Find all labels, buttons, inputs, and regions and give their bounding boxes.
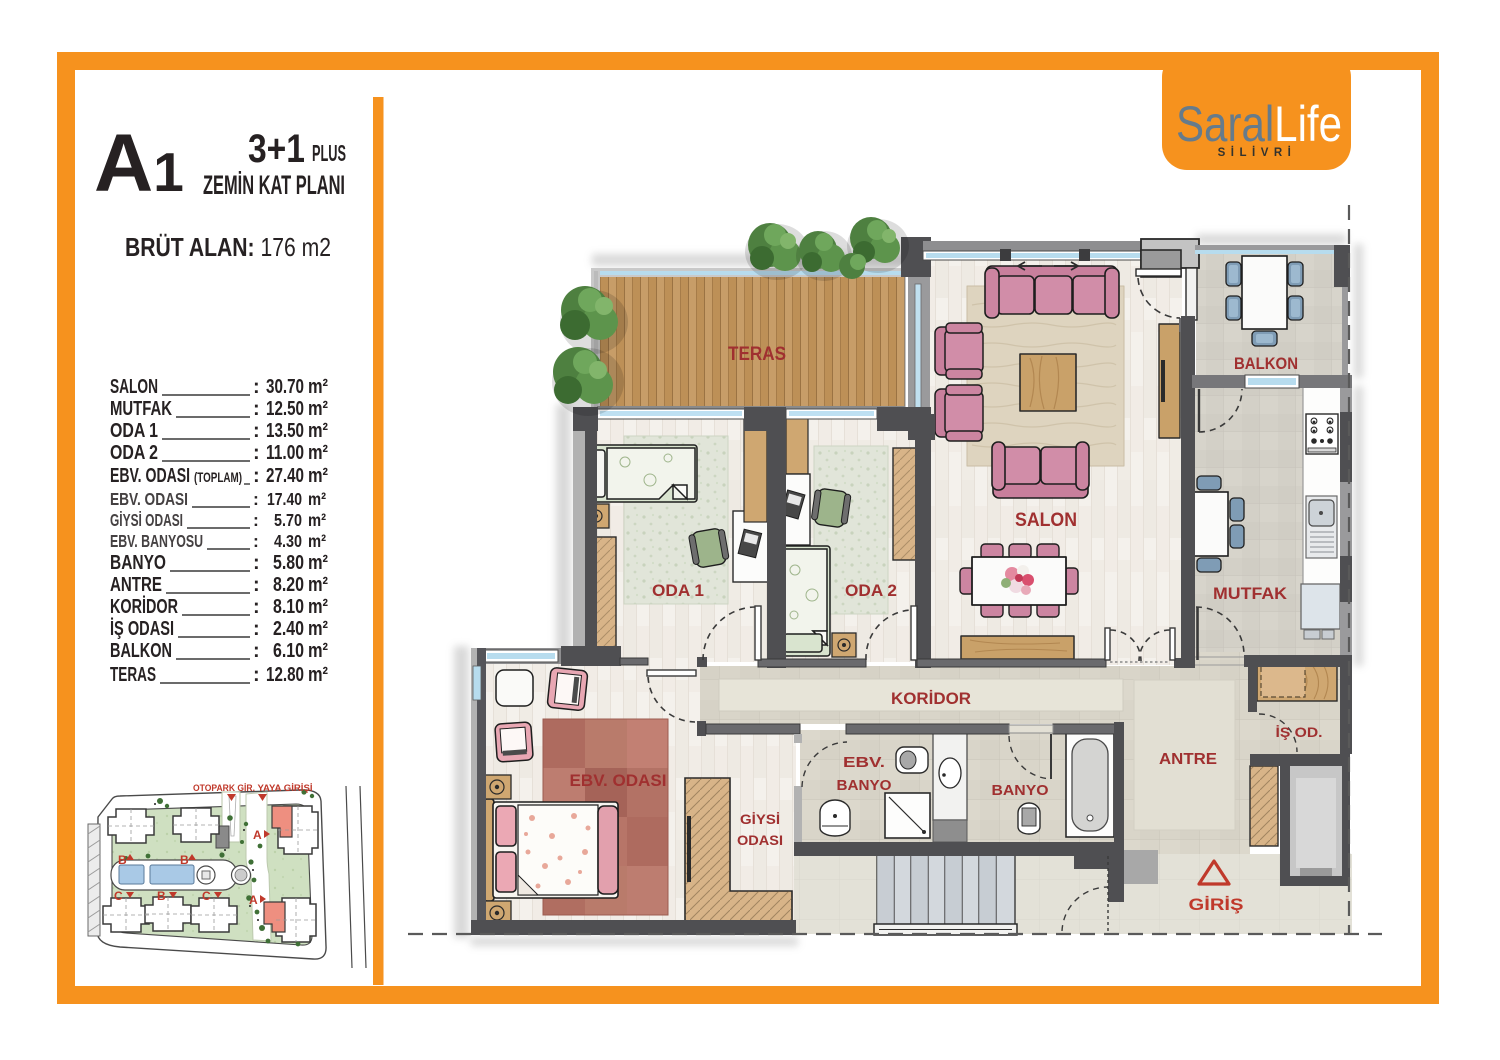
svg-text:B: B (157, 889, 166, 903)
svg-text:GİYSİ: GİYSİ (740, 811, 780, 827)
svg-text:12.50: 12.50 (266, 398, 304, 420)
svg-text:B: B (180, 853, 189, 867)
svg-text:11.00: 11.00 (266, 442, 304, 464)
svg-text:BANYO: BANYO (110, 552, 166, 574)
svg-text:YAYA GİRİŞİ: YAYA GİRİŞİ (258, 783, 313, 794)
svg-text::: : (253, 376, 260, 398)
svg-text:SALON: SALON (1015, 509, 1077, 531)
svg-text:m²: m² (308, 442, 328, 464)
svg-text:4.30: 4.30 (274, 531, 302, 551)
svg-text:A: A (253, 828, 262, 842)
svg-text:m²: m² (308, 596, 328, 618)
svg-text:8.10: 8.10 (273, 596, 304, 618)
svg-text:ODA 1: ODA 1 (652, 582, 704, 600)
svg-text:ODA 2: ODA 2 (845, 582, 897, 600)
svg-text:BANYO: BANYO (992, 782, 1049, 799)
svg-text:5.80: 5.80 (273, 552, 304, 574)
svg-text:2.40: 2.40 (273, 618, 304, 640)
svg-text:B: B (118, 853, 127, 867)
svg-text::: : (253, 596, 260, 618)
svg-text:TERAS: TERAS (728, 344, 786, 365)
svg-text:m²: m² (308, 664, 328, 686)
svg-text::: : (253, 618, 260, 640)
svg-text::: : (253, 489, 259, 509)
svg-text:SİLİVRİ: SİLİVRİ (1218, 146, 1297, 159)
svg-text:EBV. ODASI: EBV. ODASI (110, 489, 188, 509)
svg-text:ODASI: ODASI (737, 832, 783, 848)
svg-text:EBV.: EBV. (843, 755, 885, 771)
svg-text:ANTRE: ANTRE (1159, 751, 1217, 768)
svg-text::: : (253, 552, 260, 574)
svg-text:12.80: 12.80 (266, 664, 304, 686)
svg-text:EBV. BANYOSU: EBV. BANYOSU (110, 531, 203, 551)
svg-text:13.50: 13.50 (266, 420, 304, 442)
svg-text::: : (253, 398, 260, 420)
svg-text:OTOPARK GİR.: OTOPARK GİR. (193, 783, 255, 794)
svg-text:İŞ OD.: İŞ OD. (1276, 724, 1323, 740)
svg-text:6.10: 6.10 (273, 640, 304, 662)
svg-text:17.40: 17.40 (267, 489, 302, 509)
svg-text:İŞ ODASI: İŞ ODASI (110, 617, 174, 640)
svg-text:SALON: SALON (110, 376, 158, 398)
svg-text:m²: m² (308, 552, 328, 574)
svg-text:TERAS: TERAS (110, 664, 156, 686)
svg-text:SaralLife: SaralLife (1176, 96, 1342, 152)
svg-text:m²: m² (308, 398, 328, 420)
svg-text:A: A (249, 893, 258, 907)
svg-text:PLUS: PLUS (312, 140, 346, 166)
svg-text::: : (253, 510, 259, 530)
svg-text:MUTFAK: MUTFAK (1213, 584, 1288, 603)
svg-text::: : (253, 640, 260, 662)
svg-text::: : (253, 531, 259, 551)
svg-text:C: C (114, 889, 123, 903)
svg-text::: : (253, 465, 260, 487)
svg-text:8.20: 8.20 (273, 574, 304, 596)
svg-text:m²: m² (308, 376, 328, 398)
svg-text:30.70: 30.70 (266, 376, 304, 398)
svg-text:GİYSİ ODASI: GİYSİ ODASI (110, 510, 183, 530)
svg-text:KORİDOR: KORİDOR (891, 689, 971, 708)
svg-text::: : (253, 442, 260, 464)
svg-text:m²: m² (308, 510, 326, 530)
svg-text:GİRİŞ: GİRİŞ (1189, 896, 1244, 914)
svg-text:MUTFAK: MUTFAK (110, 398, 172, 420)
svg-text::: : (253, 574, 260, 596)
svg-text:ANTRE: ANTRE (110, 574, 162, 596)
svg-text::: : (253, 664, 260, 686)
svg-text:ZEMİN KAT PLANI: ZEMİN KAT PLANI (203, 170, 345, 200)
svg-text:ODA 2: ODA 2 (110, 442, 158, 464)
svg-text::: : (253, 420, 260, 442)
svg-text:m²: m² (308, 618, 328, 640)
svg-text:5.70: 5.70 (274, 510, 302, 530)
svg-text:m²: m² (308, 489, 326, 509)
svg-text:m²: m² (308, 465, 328, 487)
svg-text:BALKON: BALKON (110, 640, 172, 662)
svg-text:KORİDOR: KORİDOR (110, 595, 178, 618)
svg-text:m²: m² (308, 420, 328, 442)
svg-text:C: C (202, 889, 211, 903)
svg-text:27.40: 27.40 (266, 465, 304, 487)
svg-text:m²: m² (308, 574, 328, 596)
svg-text:m²: m² (308, 640, 328, 662)
svg-text:BRÜT ALAN: 176 m2: BRÜT ALAN: 176 m2 (125, 232, 331, 262)
svg-text:ODA 1: ODA 1 (110, 420, 158, 442)
svg-text:BALKON: BALKON (1234, 355, 1298, 373)
svg-text:EBV. ODASI (TOPLAM): EBV. ODASI (TOPLAM) (110, 465, 242, 487)
svg-text:3+1: 3+1 (248, 127, 305, 171)
svg-text:BANYO: BANYO (837, 778, 892, 794)
svg-text:EBV. ODASI: EBV. ODASI (570, 772, 667, 790)
svg-text:m²: m² (308, 531, 326, 551)
